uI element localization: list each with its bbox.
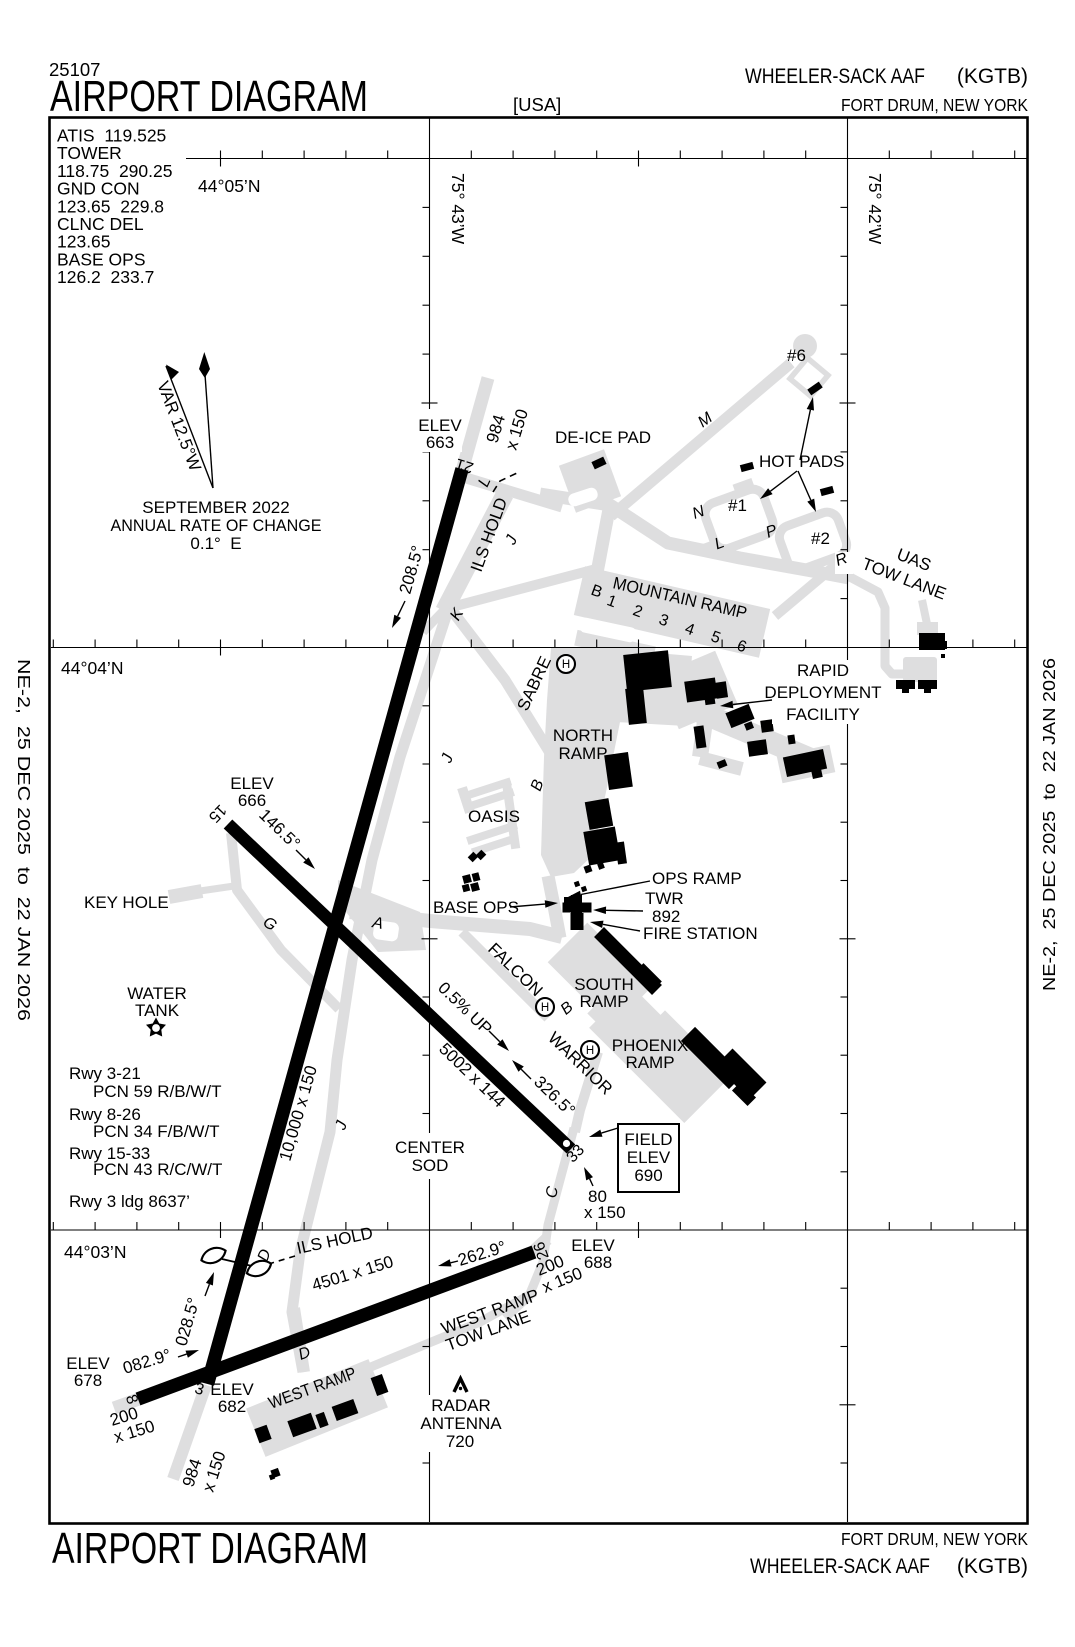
svg-text:WHEELER-SACK AAF: WHEELER-SACK AAF	[745, 65, 925, 88]
svg-text:75° 42’W: 75° 42’W	[865, 173, 885, 245]
svg-text:FACILITY: FACILITY	[786, 705, 860, 724]
svg-text:FORT DRUM, NEW YORK: FORT DRUM, NEW YORK	[841, 95, 1028, 115]
svg-text:BASE OPS: BASE OPS	[433, 898, 519, 917]
svg-text:x 150: x 150	[584, 1203, 626, 1222]
svg-text:TANK: TANK	[135, 1001, 180, 1020]
svg-text:126.2 233.7: 126.2 233.7	[57, 267, 154, 287]
svg-text:ELEV: ELEV	[627, 1148, 671, 1167]
svg-text:[USA]: [USA]	[513, 94, 561, 115]
svg-text:690: 690	[634, 1166, 662, 1185]
svg-text:H: H	[541, 1002, 549, 1014]
svg-text:#2: #2	[811, 529, 830, 548]
svg-text:DE-ICE PAD: DE-ICE PAD	[555, 428, 651, 447]
svg-text:H: H	[586, 1045, 594, 1057]
svg-text:FIRE STATION: FIRE STATION	[643, 924, 758, 943]
svg-text:682: 682	[218, 1397, 246, 1416]
svg-text:KEY HOLE: KEY HOLE	[84, 893, 169, 912]
svg-text:FIELD: FIELD	[624, 1130, 672, 1149]
svg-text:RAMP: RAMP	[625, 1053, 674, 1072]
svg-text:DEPLOYMENT: DEPLOYMENT	[764, 683, 881, 702]
svg-text:Rwy 3 ldg 8637’: Rwy 3 ldg 8637’	[69, 1192, 190, 1211]
svg-text:688: 688	[584, 1253, 612, 1272]
svg-text:ANTENNA: ANTENNA	[420, 1414, 502, 1433]
svg-text:(KGTB): (KGTB)	[957, 65, 1028, 88]
svg-text:OASIS: OASIS	[468, 807, 520, 826]
svg-text:0.1° E: 0.1° E	[190, 534, 241, 553]
svg-text:666: 666	[238, 791, 266, 810]
svg-text:NE-2, 25 DEC 2025 to 22 JAN: NE-2, 25 DEC 2025 to 22 JAN 2026	[1039, 658, 1059, 991]
svg-text:678: 678	[74, 1371, 102, 1390]
svg-text:44°03’N: 44°03’N	[64, 1242, 126, 1262]
svg-text:AIRPORT DIAGRAM: AIRPORT DIAGRAM	[50, 73, 368, 121]
svg-text:#1: #1	[728, 496, 747, 515]
svg-text:44°04’N: 44°04’N	[61, 658, 123, 678]
svg-text:RADAR: RADAR	[431, 1396, 491, 1415]
svg-text:#6: #6	[787, 346, 806, 365]
svg-text:75° 43’W: 75° 43’W	[448, 173, 468, 245]
svg-text:(KGTB): (KGTB)	[957, 1555, 1028, 1578]
svg-text:663: 663	[426, 433, 454, 452]
svg-text:TWR: TWR	[645, 889, 684, 908]
svg-text:H: H	[562, 659, 570, 671]
svg-text:RAMP: RAMP	[579, 992, 628, 1011]
svg-text:AIRPORT DIAGRAM: AIRPORT DIAGRAM	[52, 1525, 368, 1573]
svg-text:FORT DRUM, NEW YORK: FORT DRUM, NEW YORK	[841, 1529, 1028, 1549]
svg-text:PCN 59 R/B/W/T: PCN 59 R/B/W/T	[93, 1082, 221, 1101]
svg-text:NORTH: NORTH	[553, 726, 613, 745]
svg-text:720: 720	[446, 1432, 474, 1451]
svg-text:PCN 43 R/C/W/T: PCN 43 R/C/W/T	[93, 1160, 222, 1179]
svg-text:Rwy 3-21: Rwy 3-21	[69, 1064, 141, 1083]
svg-text:RAMP: RAMP	[558, 744, 607, 763]
svg-text:RAPID: RAPID	[797, 661, 849, 680]
svg-text:SOD: SOD	[412, 1156, 449, 1175]
svg-text:CENTER: CENTER	[395, 1138, 465, 1157]
svg-text:PCN 34 F/B/W/T: PCN 34 F/B/W/T	[93, 1122, 220, 1141]
svg-text:NE-2, 25 DEC 2025 to 22 JAN: NE-2, 25 DEC 2025 to 22 JAN 2026	[14, 659, 34, 1021]
svg-text:SEPTEMBER 2022: SEPTEMBER 2022	[142, 498, 289, 517]
svg-text:44°05’N: 44°05’N	[198, 176, 260, 196]
svg-text:ANNUAL RATE OF CHANGE: ANNUAL RATE OF CHANGE	[111, 516, 322, 535]
svg-text:OPS RAMP: OPS RAMP	[652, 869, 742, 888]
svg-text:WHEELER-SACK AAF: WHEELER-SACK AAF	[750, 1555, 930, 1578]
